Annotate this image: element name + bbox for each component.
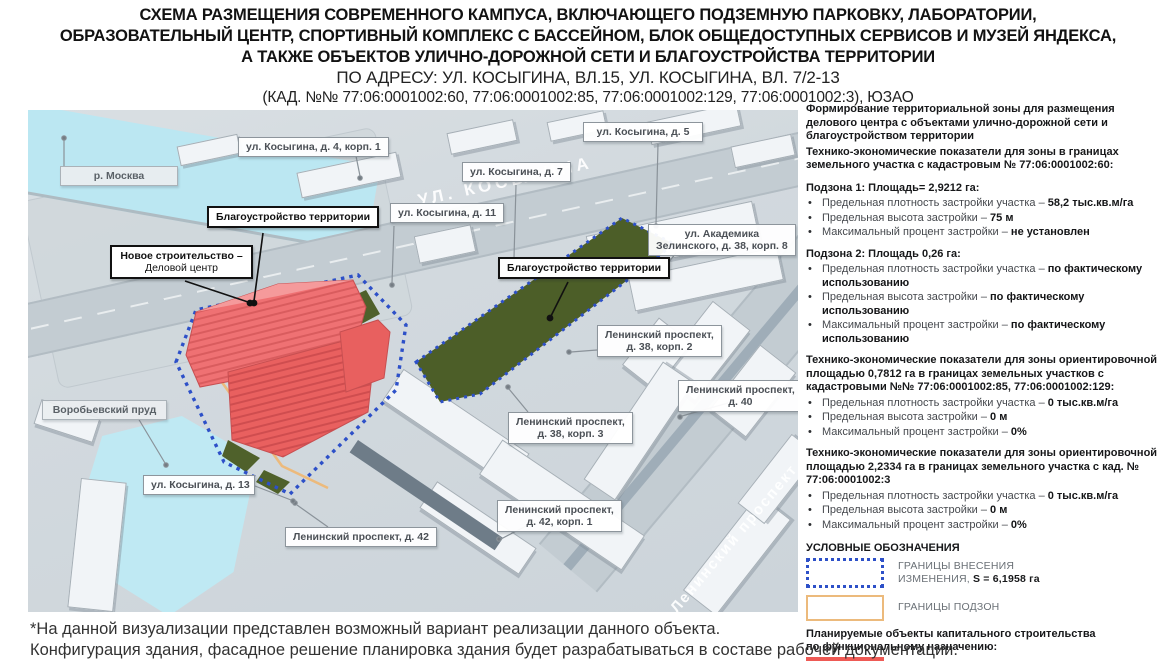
scheme-page: { "title": { "line1": "СХЕМА РАЗМЕЩЕНИЯ … bbox=[0, 0, 1176, 661]
footnote-line-1: *На данной визуализации представлен возм… bbox=[30, 619, 1130, 640]
label-kosygina-5: ул. Косыгина, д. 5 bbox=[583, 122, 703, 142]
indicator-item: Предельная плотность застройки участка –… bbox=[806, 263, 1168, 290]
label-kosygina-11: ул. Косыгина, д. 11 bbox=[390, 203, 504, 223]
label-landscaping-right: Благоустройство территории bbox=[498, 257, 670, 279]
indicator-item: Максимальный процент застройки – по факт… bbox=[806, 319, 1168, 346]
footnote: *На данной визуализации представлен возм… bbox=[30, 619, 1130, 661]
panel-zone2-heading: Технико-экономические показатели для зон… bbox=[806, 354, 1168, 395]
label-kosygina-13: ул. Косыгина, д. 13 bbox=[143, 475, 255, 495]
label-zelinskogo-38-8: ул. АкадемикаЗелинского, д. 38, корп. 8 bbox=[648, 224, 796, 256]
label-kosygina-7: ул. Косыгина, д. 7 bbox=[462, 162, 571, 182]
indicator-item: Максимальный процент застройки – 0% bbox=[806, 519, 1168, 533]
subzone-boundary-swatch bbox=[806, 595, 884, 621]
label-vorobyevsky-pond: Воробьевский пруд bbox=[42, 400, 167, 420]
subzone2-list: Предельная плотность застройки участка –… bbox=[806, 263, 1168, 346]
label-leninsky-38-3: Ленинский проспект,д. 38, корп. 3 bbox=[508, 412, 633, 444]
title-line-3: А ТАКЖЕ ОБЪЕКТОВ УЛИЧНО-ДОРОЖНОЙ СЕТИ И … bbox=[18, 46, 1159, 67]
title-block: СХЕМА РАЗМЕЩЕНИЯ СОВРЕМЕННОГО КАМПУСА, В… bbox=[0, 4, 1176, 108]
label-leninsky-40: Ленинский проспект,д. 40 bbox=[678, 380, 798, 412]
panel-zone3-heading: Технико-экономические показатели для зон… bbox=[806, 447, 1168, 488]
landscaping-strip bbox=[416, 218, 674, 402]
title-line-2: ОБРАЗОВАТЕЛЬНЫЙ ЦЕНТР, СПОРТИВНЫЙ КОМПЛЕ… bbox=[18, 25, 1159, 46]
indicator-item: Предельная плотность застройки участка –… bbox=[806, 197, 1168, 211]
zone3-list: Предельная плотность застройки участка –… bbox=[806, 490, 1168, 533]
indicator-item: Предельная плотность застройки участка –… bbox=[806, 397, 1168, 411]
change-boundary-swatch bbox=[806, 558, 884, 588]
label-leninsky-42: Ленинский проспект, д. 42 bbox=[285, 527, 437, 547]
label-new-construction: Новое строительство –Деловой центр bbox=[110, 245, 253, 279]
indicator-item: Предельная высота застройки – 0 м bbox=[806, 504, 1168, 518]
indicator-item: Предельная высота застройки – 75 м bbox=[806, 212, 1168, 226]
footnote-line-2: Конфигурация здания, фасадное решение пл… bbox=[30, 640, 1130, 661]
legend-item-subzone-boundary: ГРАНИЦЫ ПОДЗОН bbox=[806, 595, 1168, 621]
subzone1-title: Подзона 1: Площадь= 2,9212 га: bbox=[806, 182, 1168, 196]
panel-intro: Формирование территориальной зоны для ра… bbox=[806, 103, 1168, 144]
label-landscaping-left: Благоустройство территории bbox=[207, 206, 379, 228]
indicators-panel: Формирование территориальной зоны для ра… bbox=[806, 103, 1168, 661]
indicator-item: Предельная высота застройки – по фактиче… bbox=[806, 291, 1168, 318]
title-address: ПО АДРЕСУ: УЛ. КОСЫГИНА, ВЛ.15, УЛ. КОСЫ… bbox=[0, 67, 1176, 88]
title-line-1: СХЕМА РАЗМЕЩЕНИЯ СОВРЕМЕННОГО КАМПУСА, В… bbox=[18, 4, 1159, 25]
label-leninsky-38-2: Ленинский проспект,д. 38, корп. 2 bbox=[597, 325, 722, 357]
site-map: УЛ. КОСЫГИНА Ленинский проспект р. Москв… bbox=[28, 110, 798, 612]
indicator-item: Максимальный процент застройки – 0% bbox=[806, 426, 1168, 440]
indicator-item: Предельная плотность застройки участка –… bbox=[806, 490, 1168, 504]
indicator-item: Предельная высота застройки – 0 м bbox=[806, 411, 1168, 425]
label-kosygina-4-1: ул. Косыгина, д. 4, корп. 1 bbox=[238, 137, 389, 157]
indicator-item: Максимальный процент застройки – не уста… bbox=[806, 226, 1168, 240]
label-moskva-river: р. Москва bbox=[60, 166, 178, 186]
legend-item-change-boundary: ГРАНИЦЫ ВНЕСЕНИЯ ИЗМЕНЕНИЯ, S = 6,1958 г… bbox=[806, 558, 1168, 588]
subzone1-list: Предельная плотность застройки участка –… bbox=[806, 197, 1168, 240]
legend-title: УСЛОВНЫЕ ОБОЗНАЧЕНИЯ bbox=[806, 542, 1168, 556]
panel-zone1-heading: Технико-экономические показатели для зон… bbox=[806, 146, 1168, 173]
zone2-list: Предельная плотность застройки участка –… bbox=[806, 397, 1168, 440]
subzone2-title: Подзона 2: Площадь 0,26 га: bbox=[806, 248, 1168, 262]
label-leninsky-42-1: Ленинский проспект,д. 42, корп. 1 bbox=[497, 500, 622, 532]
